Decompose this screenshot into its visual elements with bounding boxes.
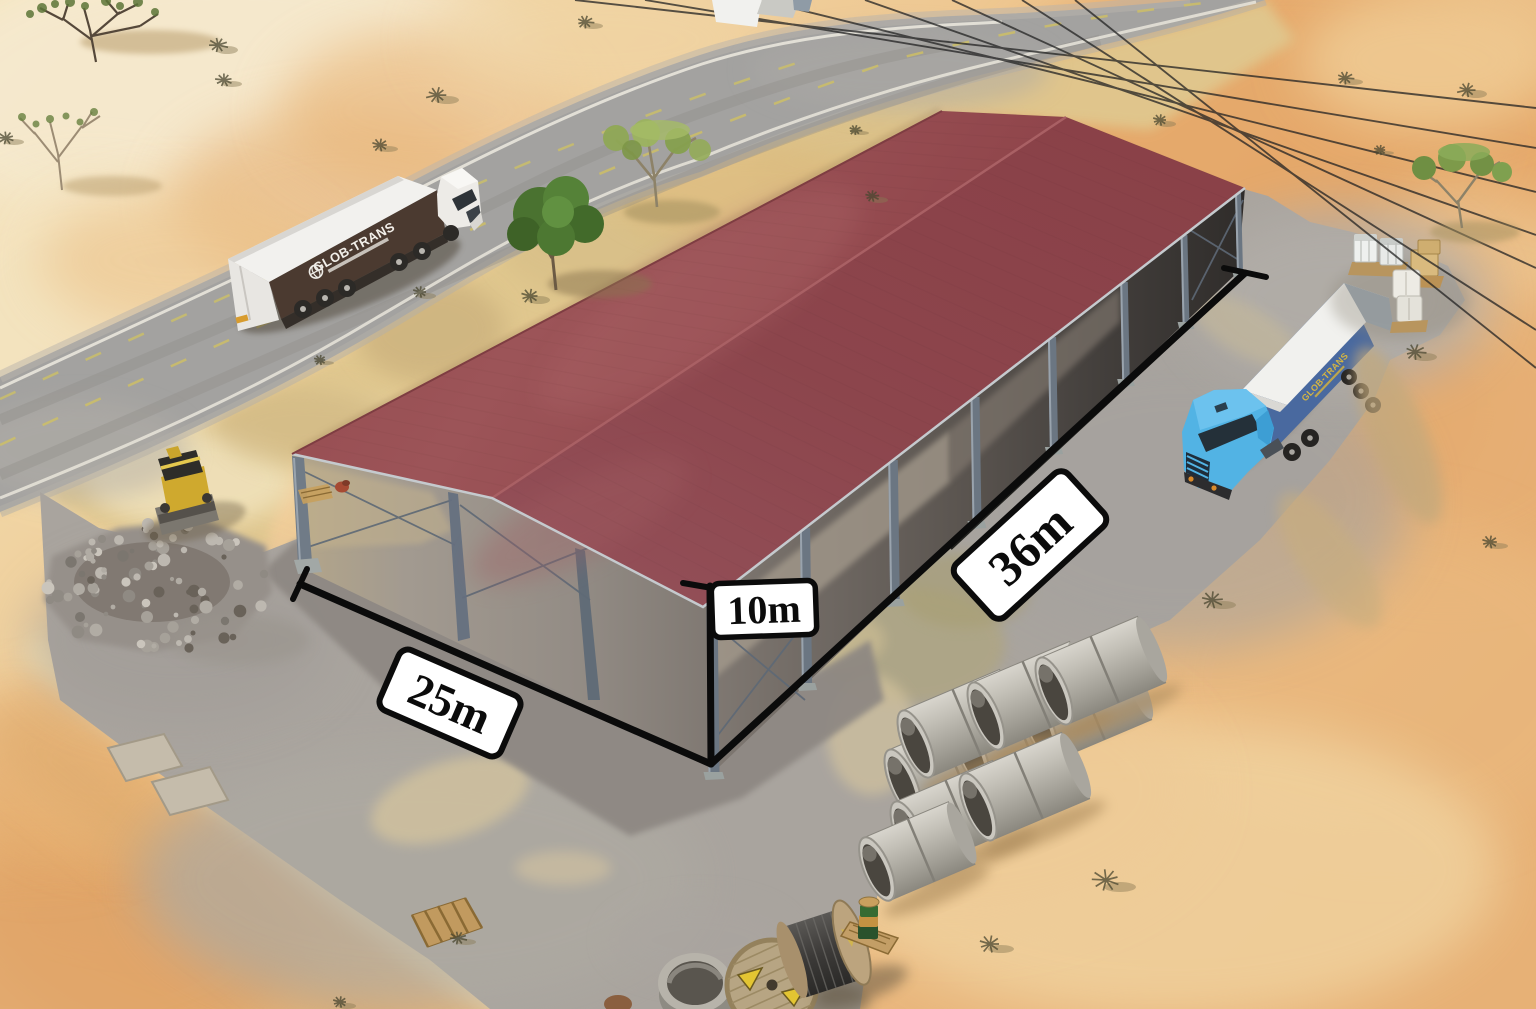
- svg-text:10m: 10m: [727, 586, 802, 634]
